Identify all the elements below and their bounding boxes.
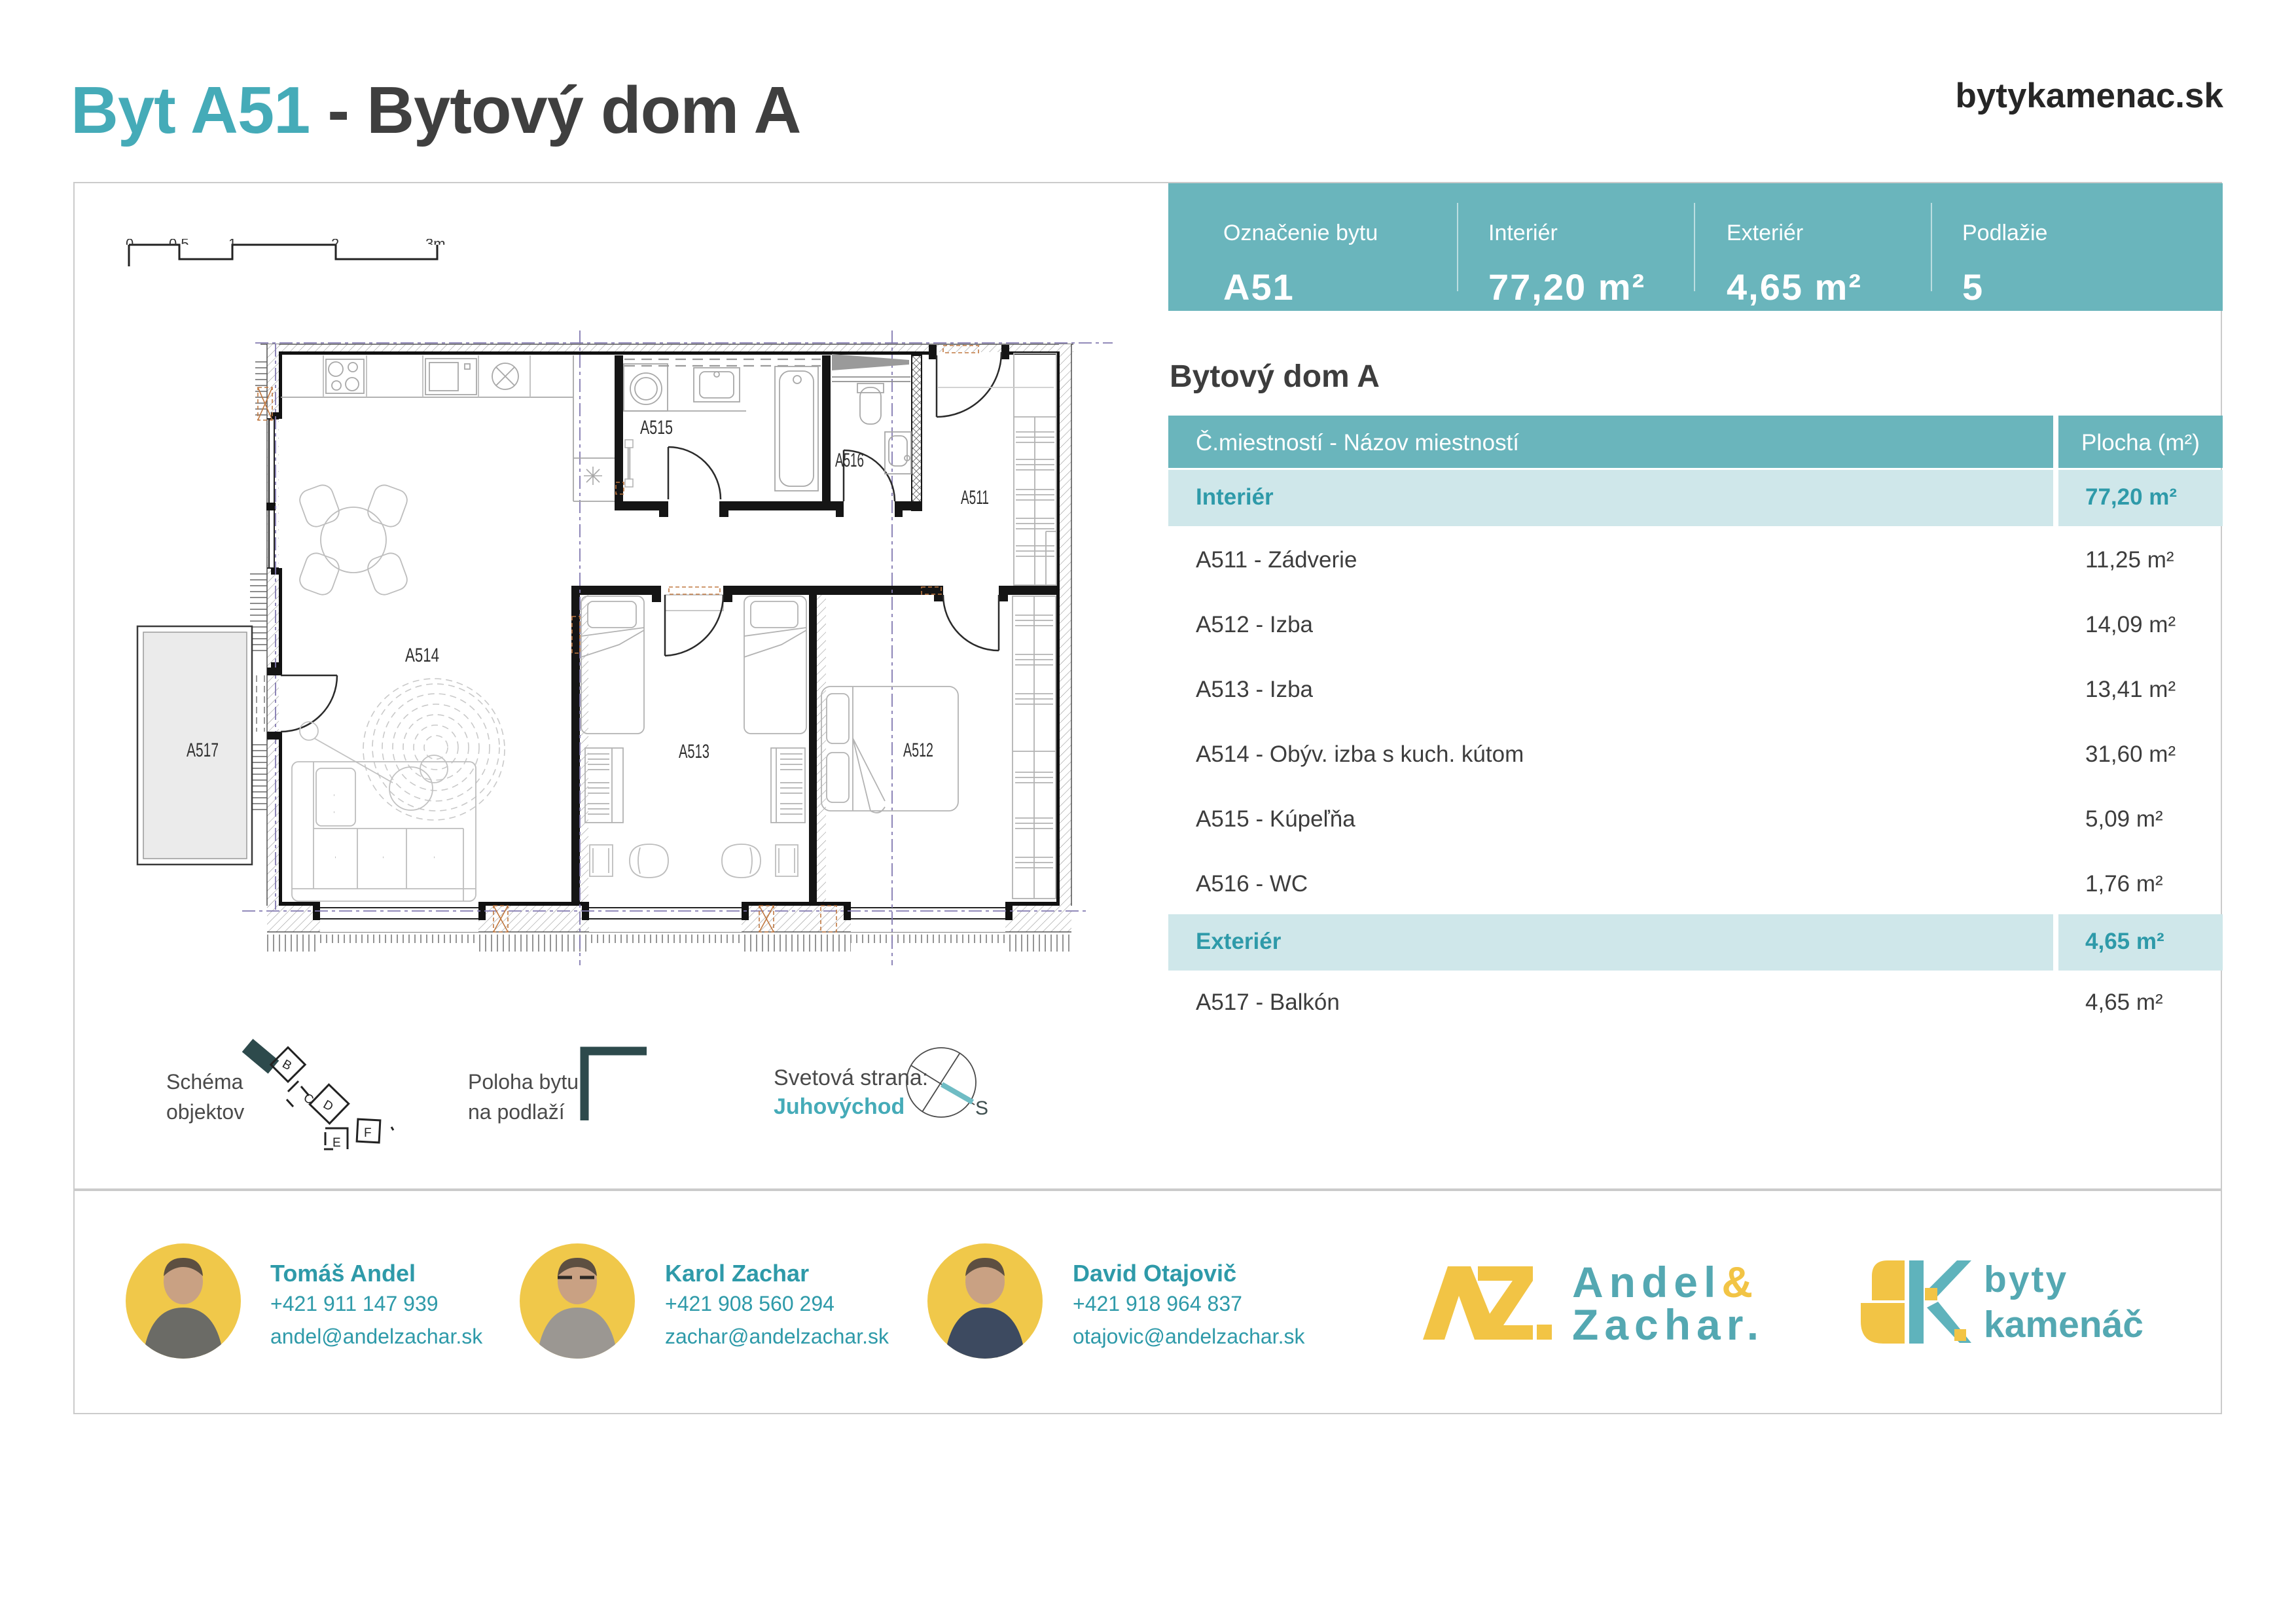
svg-text:D: D [321, 1097, 335, 1114]
svg-text:A514: A514 [405, 645, 439, 666]
svg-text:3m: 3m [425, 236, 446, 252]
svg-text:kamenáč: kamenáč [1984, 1304, 2144, 1346]
svg-text:A517: A517 [187, 740, 219, 761]
svg-text:A513: A513 [679, 741, 709, 762]
svg-text:E: E [332, 1136, 341, 1150]
svg-text:C: C [301, 1091, 315, 1107]
svg-text:Zachar.: Zachar. [1572, 1300, 1765, 1349]
svg-text:byty: byty [1984, 1258, 2068, 1300]
svg-text:A512: A512 [903, 740, 933, 761]
svg-text:S: S [975, 1097, 988, 1119]
svg-text:A515: A515 [640, 417, 673, 438]
svg-text:Andel&: Andel& [1572, 1258, 1759, 1306]
svg-text:A511: A511 [961, 487, 989, 508]
svg-text:F: F [364, 1126, 372, 1140]
svg-text:A516: A516 [835, 450, 864, 471]
svg-text:B: B [279, 1058, 293, 1074]
